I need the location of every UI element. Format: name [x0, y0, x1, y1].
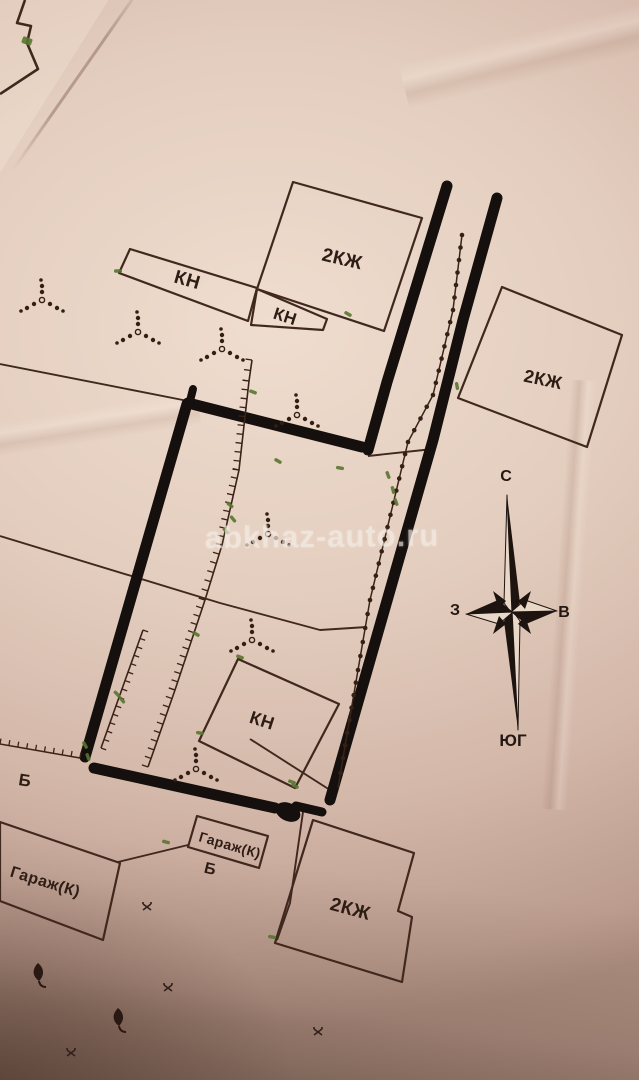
- boundary-thick-lines: [85, 186, 497, 812]
- compass-east-label: В: [558, 604, 570, 622]
- compass-west-label: З: [450, 602, 460, 620]
- watermark-text: abkhaz-auto.ru: [205, 518, 440, 556]
- building-outlines: [0, 0, 622, 982]
- compass-south-label: ЮГ: [499, 731, 526, 751]
- compass-north-label: С: [500, 468, 512, 486]
- compass-rose-icon: [466, 495, 557, 730]
- scanned-site-plan: КН КН 2КЖ 2КЖ КН 2КЖ Гараж(К) Гараж(К) Б…: [0, 0, 639, 1080]
